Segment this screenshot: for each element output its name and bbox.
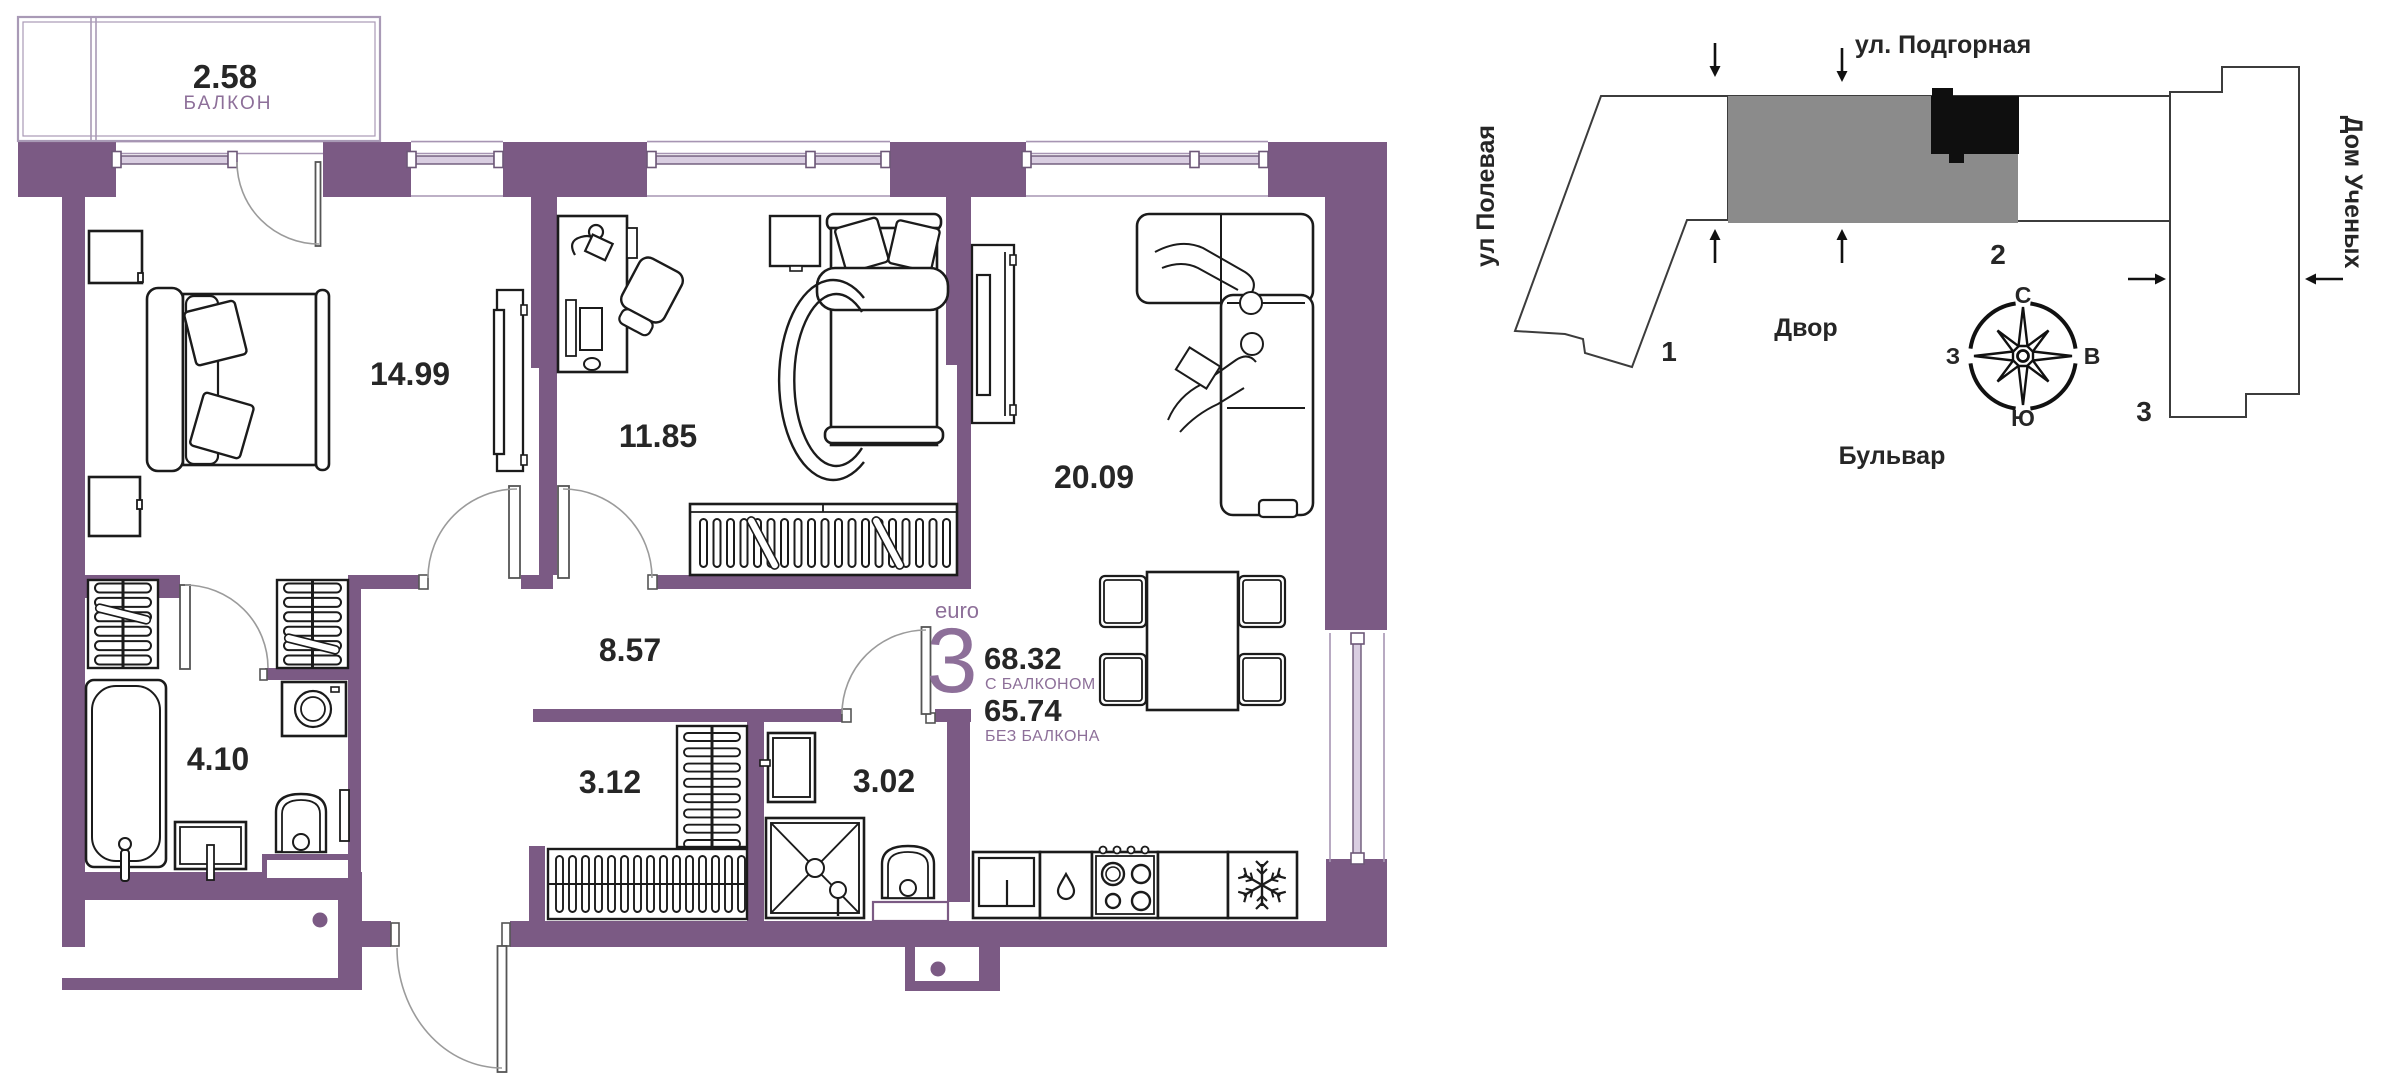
svg-text:14.99: 14.99 xyxy=(370,356,450,392)
svg-text:1: 1 xyxy=(1661,336,1677,367)
svg-text:БЕЗ БАЛКОНА: БЕЗ БАЛКОНА xyxy=(985,728,1100,745)
svg-text:В: В xyxy=(2084,343,2101,369)
svg-text:С БАЛКОНОМ: С БАЛКОНОМ xyxy=(985,676,1096,693)
svg-text:65.74: 65.74 xyxy=(984,693,1062,728)
svg-text:4.10: 4.10 xyxy=(187,741,249,777)
svg-text:3.12: 3.12 xyxy=(579,764,641,800)
svg-text:С: С xyxy=(2015,282,2032,308)
svg-text:3.02: 3.02 xyxy=(853,763,915,799)
svg-text:Дом Ученых: Дом Ученых xyxy=(2339,116,2367,269)
svg-text:2: 2 xyxy=(1990,239,2006,270)
svg-text:11.85: 11.85 xyxy=(619,418,697,454)
svg-text:Двор: Двор xyxy=(1774,314,1837,342)
svg-text:68.32: 68.32 xyxy=(984,641,1062,676)
svg-text:ул. Подгорная: ул. Подгорная xyxy=(1855,31,2031,59)
svg-text:20.09: 20.09 xyxy=(1054,459,1134,495)
svg-text:БАЛКОН: БАЛКОН xyxy=(184,93,273,114)
svg-text:ул Полевая: ул Полевая xyxy=(1472,125,1500,267)
svg-text:3: 3 xyxy=(926,610,977,712)
svg-text:З: З xyxy=(1946,343,1960,369)
svg-text:Бульвар: Бульвар xyxy=(1839,442,1946,470)
svg-text:Ю: Ю xyxy=(2011,405,2035,431)
svg-text:3: 3 xyxy=(2136,396,2152,427)
svg-text:8.57: 8.57 xyxy=(599,632,661,668)
svg-text:2.58: 2.58 xyxy=(193,58,257,95)
